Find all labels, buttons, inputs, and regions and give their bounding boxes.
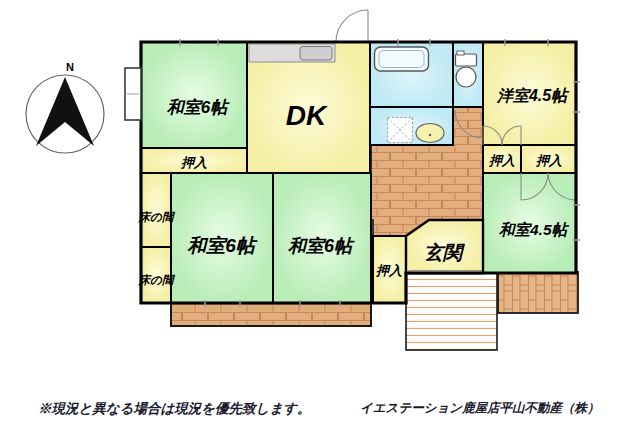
closet-label-right-2: 押入 — [536, 154, 562, 167]
room-label-dk: DK — [286, 102, 326, 130]
deck-east — [498, 272, 578, 313]
washer-pan-icon — [388, 118, 413, 143]
bathtub-icon — [375, 47, 429, 71]
closet-label-mid: 押入 — [376, 264, 402, 277]
room-label-washitsu6-left: 和室6帖 — [187, 236, 255, 255]
veranda-south — [171, 303, 371, 326]
entrance-porch-steps — [406, 273, 497, 350]
room-label-washitsu6-mid: 和室6帖 — [288, 237, 352, 255]
washbasin-icon — [416, 124, 444, 143]
kitchen-sink-icon — [300, 47, 332, 61]
disclaimer-text: ※現況と異なる場合は現況を優先致します。 — [38, 402, 311, 416]
tokonoma-label-2: 床の間 — [139, 275, 174, 287]
room-washitsu6-top — [141, 42, 247, 148]
floorplan-drawing — [0, 0, 640, 427]
room-label-genkan: 玄関 — [424, 243, 462, 262]
tokonoma-alcove-1 — [141, 173, 171, 247]
room-label-washitsu45: 和室4.5帖 — [499, 222, 567, 238]
compass-icon — [26, 75, 104, 153]
room-label-washitsu6-top: 和室6帖 — [167, 99, 227, 116]
closet-label-right-1: 押入 — [489, 154, 515, 167]
company-text: イエステーション鹿屋店平山不動産（株） — [360, 402, 600, 415]
floorplan-canvas: N 和室6帖 DK 洋室4.5帖 押入 床の間 床の間 和室6帖 和室6帖 押入… — [0, 0, 640, 427]
compass-north-label: N — [66, 61, 74, 73]
room-label-yoshitsu45: 洋室4.5帖 — [497, 88, 567, 104]
tokonoma-label-1: 床の間 — [139, 212, 174, 224]
bay-window — [125, 68, 141, 120]
closet-label-top: 押入 — [181, 156, 207, 169]
kitchen-backdoor-arc — [336, 10, 368, 42]
